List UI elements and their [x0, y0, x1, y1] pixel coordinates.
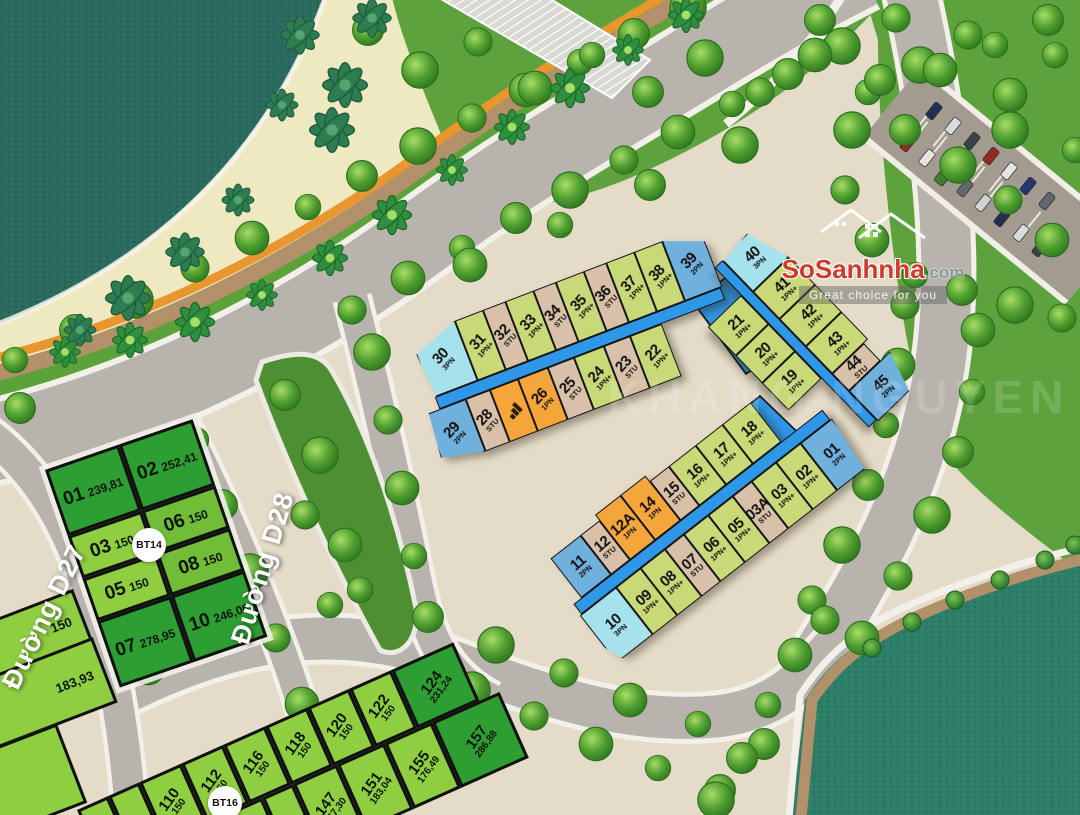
unit-label: 311PN+: [466, 331, 495, 359]
plot-label: 147167,30: [311, 787, 349, 815]
unit-label: 112PN: [568, 554, 593, 580]
unit-label: 403PN: [742, 245, 768, 271]
plot-label: 01239,81: [60, 470, 126, 511]
unit-label: 161PN+: [683, 461, 711, 490]
unit-label: 28STU: [475, 408, 501, 434]
unit-label: 331PN+: [516, 312, 545, 340]
sosanhnha-watermark: SoSanhnha.com Great choice for you: [778, 198, 968, 304]
plot-label: 05150: [102, 570, 152, 606]
plot-label: 08150: [175, 544, 225, 580]
unit-label: 201PN+: [751, 339, 779, 368]
unit-label: 25STU: [558, 376, 584, 402]
unit-label: 091PN+: [633, 587, 661, 616]
unit-label: 261PN: [530, 386, 556, 412]
plot-label: 124231,24: [416, 666, 454, 705]
plot-label: 116150: [240, 748, 274, 782]
plot-label: 07278,95: [113, 621, 179, 662]
house-logo-icon: [813, 198, 933, 256]
faint-watermark: KHANG NGUYEN THINH: [608, 370, 1080, 424]
plot-label: 122150: [366, 691, 401, 726]
unit-label: 221PN+: [642, 342, 671, 370]
stairs-icon: [505, 402, 522, 419]
plot-label: 151183,04: [356, 767, 394, 806]
unit-label: 081PN+: [657, 568, 685, 597]
unit-label: 431PN+: [823, 328, 851, 357]
plot-label: 03150: [87, 527, 137, 563]
unit-label: 392PN: [679, 251, 705, 277]
site-plan-scene: 01239,8102252,41031500615005150081500727…: [0, 0, 1080, 815]
unit-label: 292PN: [442, 420, 468, 446]
unit-label: 351PN+: [567, 292, 596, 320]
unit-label: 381PN+: [645, 262, 674, 290]
plot-area: 183,93: [53, 667, 95, 695]
unit-label: 211PN+: [724, 311, 752, 340]
plot-label: 118150: [282, 729, 316, 763]
plot-label: 02252,41: [134, 445, 200, 486]
unit-label: 421PN+: [796, 301, 824, 330]
unit-label: 012PN: [822, 441, 848, 467]
unit-label: 061PN+: [700, 534, 728, 563]
plot-label: 155176,49: [404, 746, 442, 785]
plot-label: 110150: [156, 785, 190, 815]
block-badge-bt16[interactable]: BT16: [208, 786, 242, 815]
unit-label: 031PN+: [768, 481, 796, 510]
unit-label: 021PN+: [793, 462, 821, 491]
unit-label: 303PN: [431, 346, 457, 372]
unit-label: 371PN+: [617, 273, 646, 301]
unit-label: 103PN: [603, 612, 629, 638]
watermark-suffix: .com: [925, 263, 965, 282]
plot-label: 157286,88: [461, 720, 499, 759]
plot-label: 120150: [324, 710, 359, 745]
block-badge-bt14[interactable]: BT14: [132, 528, 166, 562]
unit-label: 141PN: [637, 495, 663, 521]
unit-label: 171PN+: [710, 440, 738, 469]
watermark-brand: SoSanhnha: [782, 254, 925, 284]
plot-label: 06150: [161, 502, 211, 538]
watermark-tagline: Great choice for you: [799, 286, 947, 304]
